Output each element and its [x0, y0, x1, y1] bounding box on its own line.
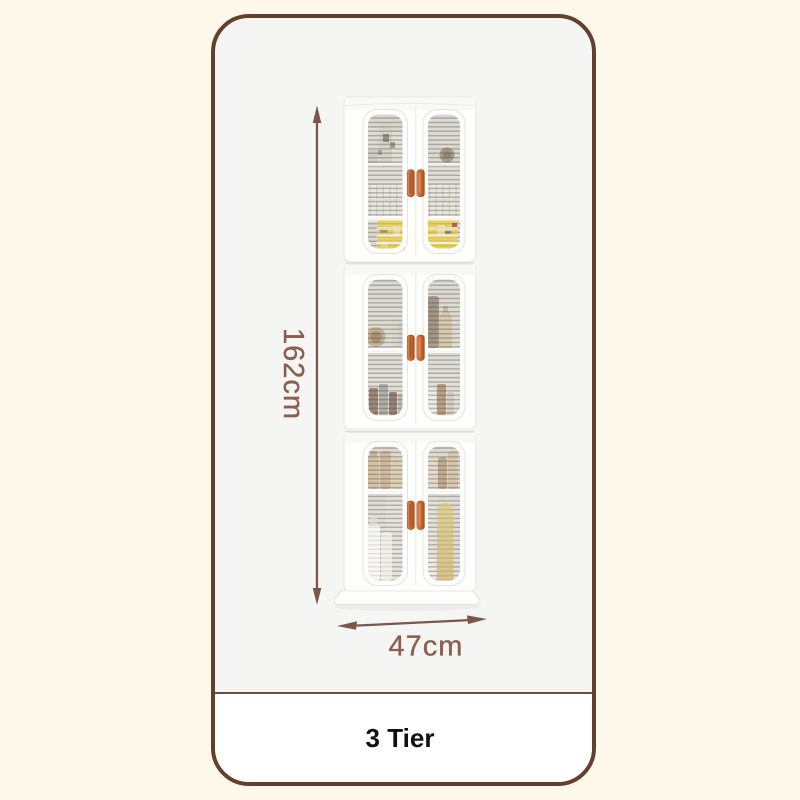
svg-text:47cm: 47cm	[389, 631, 464, 663]
svg-text:162cm: 162cm	[277, 328, 309, 420]
